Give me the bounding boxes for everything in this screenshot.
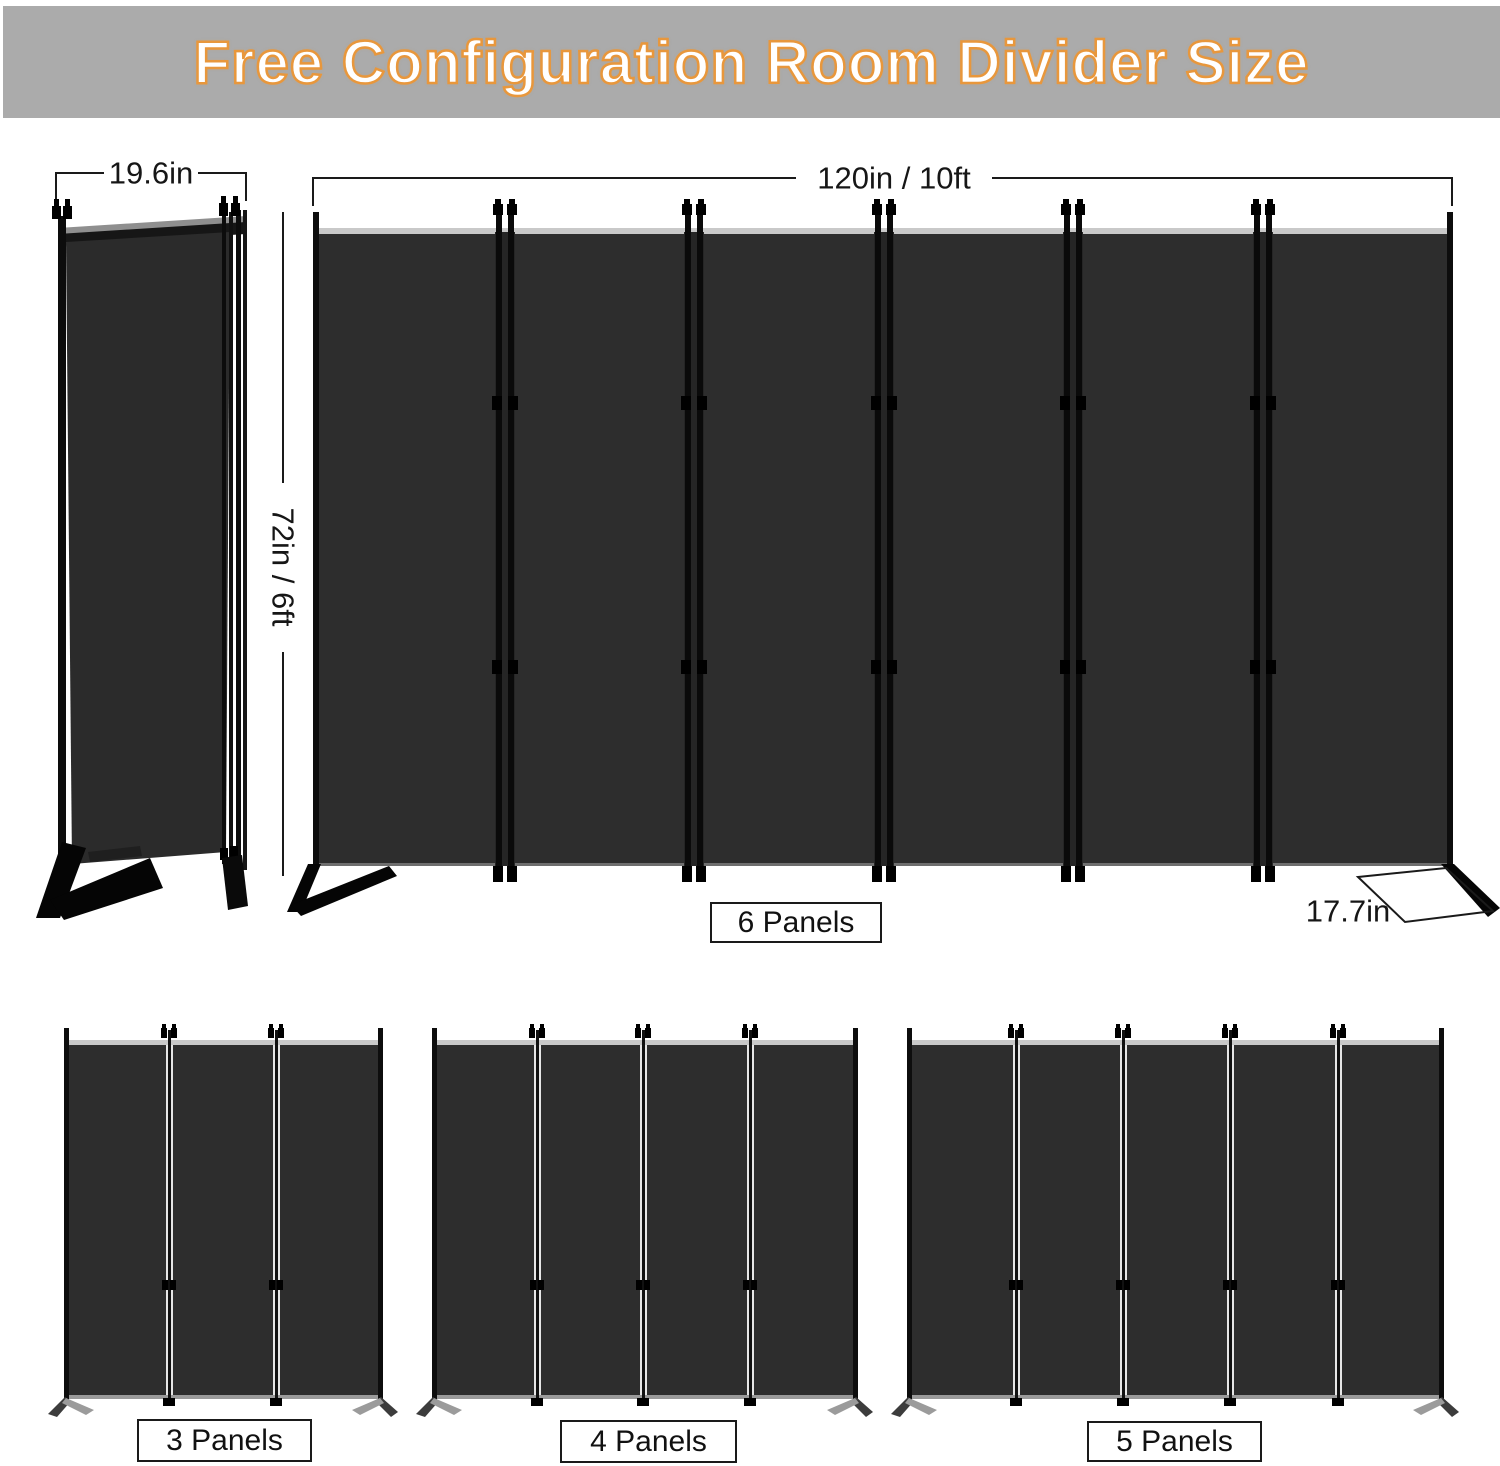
- dim-foot-depth-label: 17.7in: [1306, 896, 1390, 927]
- panel-count-badge-4: 4 Panels: [560, 1420, 737, 1463]
- dim-folded-width-label: 19.6in: [109, 158, 193, 189]
- five-panel-divider-figure: [891, 1024, 1459, 1417]
- panel-count-badge-5: 5 Panels: [1087, 1421, 1262, 1462]
- three-panel-divider-figure: [48, 1024, 398, 1417]
- panel-count-badge-3: 3 Panels: [137, 1419, 312, 1462]
- panel-count-badge-6: 6 Panels: [710, 902, 882, 943]
- dim-height-label: 72in / 6ft: [268, 508, 299, 627]
- product-diagram: [0, 0, 1500, 1466]
- four-panel-divider-figure: [416, 1024, 873, 1417]
- dim-total-width-label: 120in / 10ft: [817, 163, 970, 194]
- six-panel-divider-figure: [287, 199, 1500, 917]
- folded-divider-figure: [36, 196, 248, 920]
- product-size-infographic: Free Configuration Room Divider Size 19.…: [0, 0, 1500, 1466]
